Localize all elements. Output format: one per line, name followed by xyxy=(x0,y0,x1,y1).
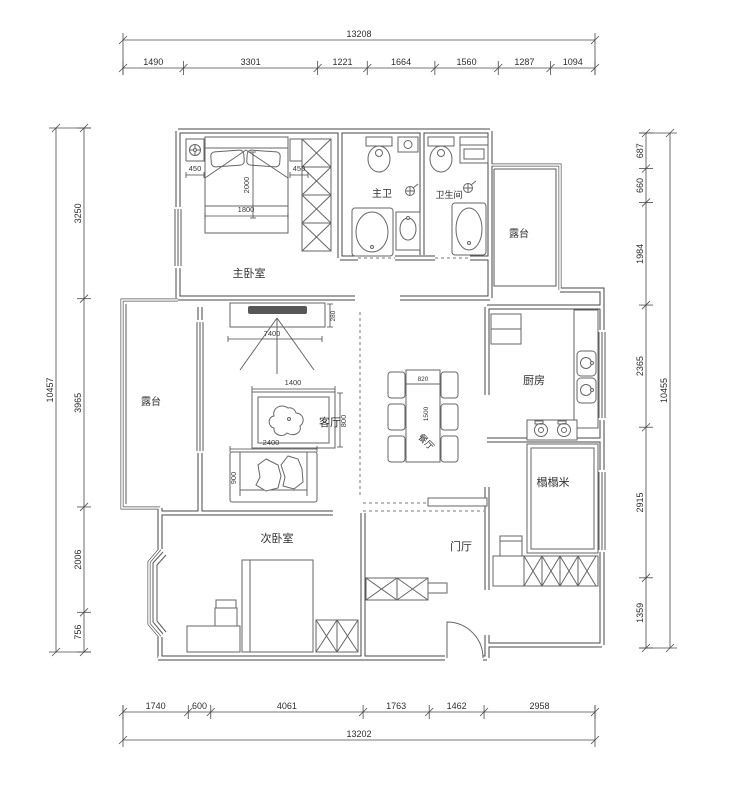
dim-label: 2000 xyxy=(242,177,251,194)
dim-label: 1462 xyxy=(447,701,467,711)
side-table xyxy=(500,536,522,556)
dim-total-label: 13208 xyxy=(346,29,371,39)
dim-chain-right: 687660198423652915135910455 xyxy=(635,129,677,652)
dining-chair xyxy=(441,372,458,398)
faucet-icon xyxy=(406,184,419,196)
bathtub xyxy=(452,203,486,255)
foyer-furniture xyxy=(366,498,487,658)
room-label-terrace-left: 露台 xyxy=(141,395,161,408)
shelf xyxy=(398,137,418,152)
dim-label: 2915 xyxy=(635,492,645,512)
dim-label: 2400 xyxy=(263,438,280,447)
dim-label: 3965 xyxy=(73,393,83,413)
dim-label: 2006 xyxy=(73,550,83,570)
dim-chain-bottom: 1740600406117631462295813202 xyxy=(119,701,599,747)
dim-total-label: 10455 xyxy=(659,378,669,403)
sofa xyxy=(230,452,317,502)
balcony-wall xyxy=(490,165,560,290)
dim-label: 820 xyxy=(418,376,429,383)
wardrobe xyxy=(302,139,331,251)
dim-label: 1984 xyxy=(635,244,645,264)
window-master-bedroom xyxy=(175,209,181,266)
wall-inner-core xyxy=(490,165,560,290)
toilet-tank xyxy=(366,137,392,146)
dim-label: 450 xyxy=(189,164,202,173)
dim-chain-top: 149033011221166415601287109413208 xyxy=(119,29,599,75)
dim-label: 1800 xyxy=(238,205,255,214)
room-label-foyer: 门厅 xyxy=(450,539,472,553)
dim-label: 280 xyxy=(330,310,337,321)
shoe-cabinet xyxy=(366,578,447,600)
tatami-wardrobe xyxy=(493,556,598,586)
dim-label: 1221 xyxy=(332,57,352,67)
dim-label: 3301 xyxy=(241,57,261,67)
room-label-master-bedroom: 主卧室 xyxy=(233,266,266,280)
room-label-master-bath: 主卫 xyxy=(372,188,392,200)
dim-label: 1763 xyxy=(386,701,406,711)
dim-label: 1490 xyxy=(143,57,163,67)
room-label-bathroom: 卫生间 xyxy=(435,189,462,200)
dim-label: 2958 xyxy=(530,701,550,711)
floor-plan-page: 450 450 1800 2000 xyxy=(0,0,740,800)
pillow xyxy=(246,150,280,167)
flower-decor-icon xyxy=(190,145,201,156)
floor-plan-drawing: 450 450 1800 2000 xyxy=(0,0,740,800)
dim-label: 4061 xyxy=(277,701,297,711)
bay-window-glazing xyxy=(153,552,166,634)
pillow xyxy=(211,150,245,167)
nightstand xyxy=(215,600,237,626)
dim-label: 600 xyxy=(192,701,207,711)
dim-label: 1500 xyxy=(423,406,430,421)
room-label-kitchen: 厨房 xyxy=(523,374,545,387)
low-cabinet xyxy=(187,626,240,652)
wardrobe xyxy=(316,620,358,652)
dim-label: 450 xyxy=(293,164,306,173)
dim-label: 3250 xyxy=(73,203,83,223)
washing-machine xyxy=(460,137,488,163)
dim-label: 687 xyxy=(635,143,645,158)
dim-label: 1740 xyxy=(146,701,166,711)
entry-door xyxy=(447,622,483,658)
room-label-living: 客厅 xyxy=(319,415,341,429)
dining-chair xyxy=(441,436,458,462)
stove xyxy=(527,420,577,440)
master-bedroom-furniture: 450 450 1800 2000 xyxy=(186,137,331,251)
dim-total-label: 10457 xyxy=(45,377,55,402)
tatami-furniture xyxy=(493,444,598,586)
dim-label: 1560 xyxy=(457,57,477,67)
dim-label: 1400 xyxy=(285,378,302,387)
tv-light-cone xyxy=(240,318,314,374)
second-bedroom-furniture xyxy=(187,560,358,652)
dining-chair xyxy=(388,404,405,430)
half-wall xyxy=(428,498,487,506)
dining-chair xyxy=(441,404,458,430)
room-label-second-bedroom: 次卧室 xyxy=(261,531,294,545)
dim-label: 1094 xyxy=(563,57,583,67)
dim-label: 756 xyxy=(73,625,83,640)
dim-label: 660 xyxy=(635,178,645,193)
wall-inner-core xyxy=(560,290,602,307)
bed xyxy=(242,560,313,652)
dim-label: 7400 xyxy=(264,329,281,338)
living-room-furniture: 7400 280 1400 800 2400 900 xyxy=(228,303,348,502)
terrace-top-rail xyxy=(494,169,556,286)
window-living-terrace xyxy=(197,322,203,451)
dining-chair xyxy=(388,436,405,462)
dim-total-label: 13202 xyxy=(346,729,371,739)
fridge xyxy=(491,314,521,344)
room-label-terrace-top: 露台 xyxy=(509,227,529,240)
dim-label: 1287 xyxy=(514,57,534,67)
tatami-platform xyxy=(527,444,598,553)
dim-chain-left: 32503965200675610457 xyxy=(45,124,91,656)
room-label-tatami: 榻榻米 xyxy=(537,475,570,489)
window-kitchen xyxy=(599,332,605,418)
toilet-tank xyxy=(428,137,454,146)
wall xyxy=(560,290,602,307)
dim-label: 1664 xyxy=(391,57,411,67)
dining-furniture: 820 1500 xyxy=(388,370,458,462)
dim-label: 2365 xyxy=(635,356,645,376)
dim-label: 900 xyxy=(229,472,238,485)
window-tatami xyxy=(599,472,605,550)
dining-chair xyxy=(388,372,405,398)
faucet-icon xyxy=(464,181,477,193)
dim-label: 1359 xyxy=(635,603,645,623)
tv xyxy=(248,306,307,314)
